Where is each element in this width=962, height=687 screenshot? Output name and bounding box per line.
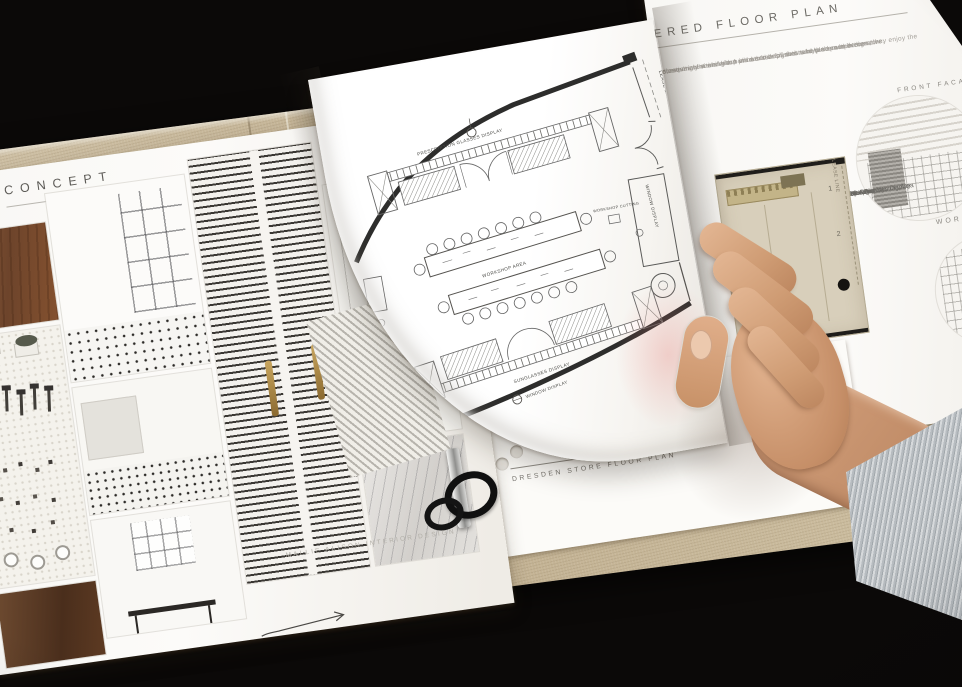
hammer-icon: [47, 386, 51, 412]
window-grid: [130, 515, 196, 571]
plan-number: 2: [836, 231, 841, 238]
hammer-icon: [19, 389, 23, 415]
plan-column-dot: [837, 278, 851, 292]
cup: [54, 544, 71, 561]
hand-drawn-arrow: [257, 607, 355, 642]
cup: [3, 551, 20, 568]
table: [128, 599, 216, 616]
plan-box: [780, 173, 805, 188]
portfolio-photo: ERED FLOOR PLAN creative activities with…: [0, 0, 962, 687]
table-leg: [135, 615, 139, 633]
thumb-nail: [690, 330, 712, 360]
tiled-kitchen-photo: [72, 369, 228, 515]
wood-desk-photo: [0, 222, 59, 333]
lease-line: [841, 166, 859, 285]
workshop-grid: [937, 239, 962, 340]
hammer-icon: [33, 383, 37, 409]
brass-handle: [264, 360, 279, 416]
plan-number: 1: [828, 185, 833, 192]
kitchen-window-photo: [91, 501, 246, 637]
dark-wood-photo: [0, 581, 106, 668]
cup: [29, 554, 46, 571]
plant: [15, 334, 38, 348]
facade-awning: [849, 88, 962, 162]
workshop-sketch: [929, 227, 962, 351]
basket: [0, 340, 1, 357]
glazed-partition-photo: [45, 175, 210, 383]
cabinet: [81, 395, 145, 460]
hammer-icon: [5, 385, 9, 411]
basket: [14, 341, 40, 358]
window-grid: [118, 185, 196, 312]
table-leg: [208, 605, 212, 623]
front-facade-sketch: [849, 88, 962, 228]
plan-divider: [811, 192, 830, 321]
